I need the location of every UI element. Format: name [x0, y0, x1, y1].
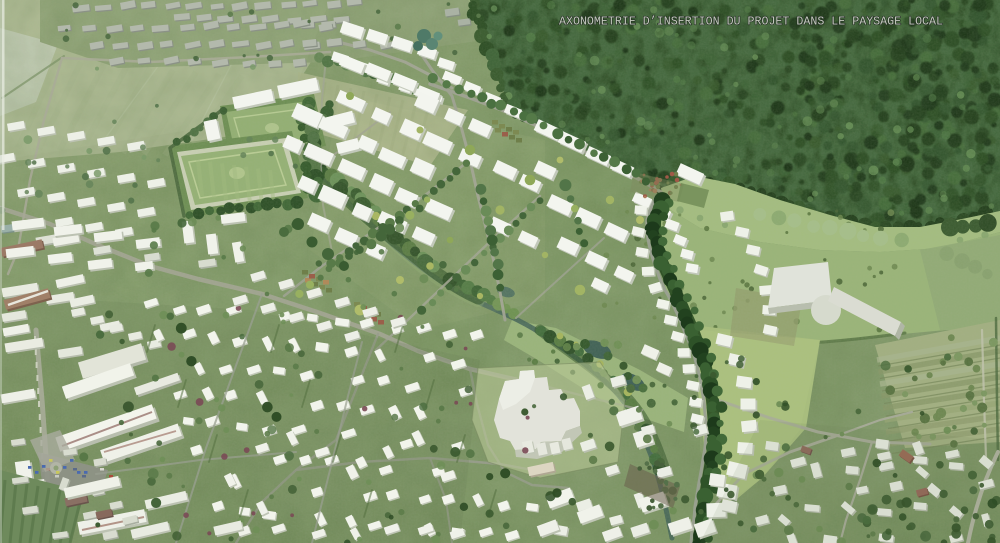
- svg-text:AXONOMETRIE D’INSERTION DU PRO: AXONOMETRIE D’INSERTION DU PROJET DANS L…: [559, 16, 943, 29]
